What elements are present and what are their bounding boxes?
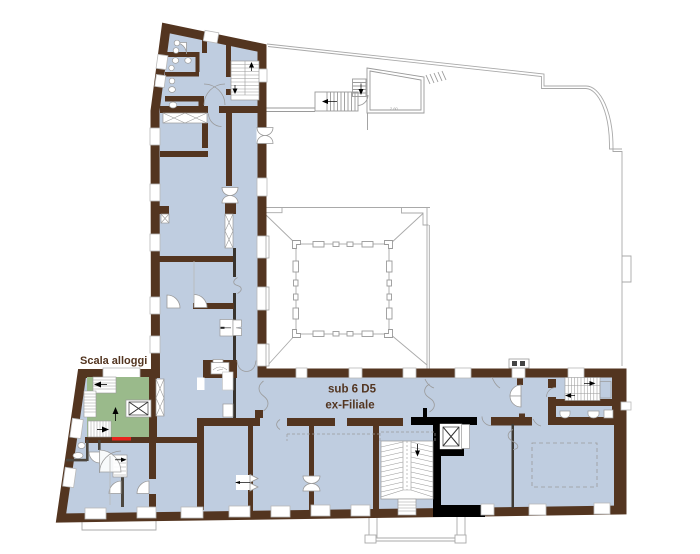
svg-text:ex-Filiale: ex-Filiale (325, 400, 374, 412)
svg-text:sub 6 D5: sub 6 D5 (328, 384, 377, 396)
svg-text:Scala alloggi: Scala alloggi (80, 355, 147, 367)
svg-text:2.60: 2.60 (390, 106, 399, 111)
